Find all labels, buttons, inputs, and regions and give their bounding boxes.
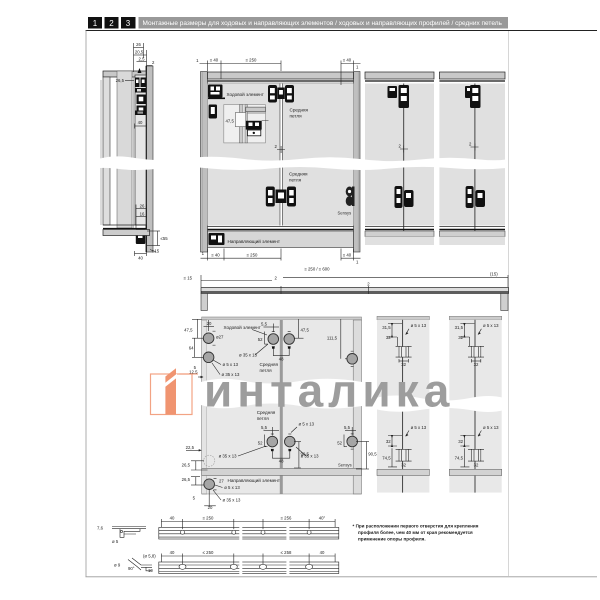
svg-text:16: 16: [140, 212, 145, 217]
svg-text:10: 10: [148, 568, 153, 573]
svg-text:5,5: 5,5: [261, 425, 268, 430]
svg-text:3: 3: [126, 19, 131, 28]
svg-text:≤ 250: ≤ 250: [203, 550, 214, 555]
svg-text:(15): (15): [490, 272, 498, 277]
svg-text:2,5: 2,5: [139, 57, 146, 62]
svg-text:20,5: 20,5: [135, 50, 144, 55]
svg-text:≤ 40: ≤ 40: [210, 58, 219, 63]
svg-text:20: 20: [207, 321, 212, 326]
svg-text:90,5: 90,5: [368, 452, 377, 457]
svg-text:петля: петля: [257, 416, 270, 421]
svg-text:профиля более, чем 40 мм от кр: профиля более, чем 40 мм от края рекомен…: [358, 529, 473, 535]
svg-text:применение опоры профиля.: применение опоры профиля.: [358, 536, 426, 542]
svg-text:(ø 5,8): (ø 5,8): [143, 554, 156, 559]
svg-text:40: 40: [170, 516, 175, 521]
svg-text:петля: петля: [289, 178, 302, 183]
svg-text:48: 48: [279, 459, 284, 464]
svg-text:инталика: инталика: [204, 365, 454, 417]
svg-text:40: 40: [320, 550, 325, 555]
svg-text:Sensys: Sensys: [338, 463, 352, 468]
svg-text:ø 5: ø 5: [112, 539, 119, 544]
svg-text:Средняя: Средняя: [289, 172, 308, 177]
svg-text:≤ 256: ≤ 256: [281, 516, 292, 521]
svg-text:7,6: 7,6: [97, 526, 104, 531]
svg-text:≤ 250: ≤ 250: [247, 252, 258, 257]
svg-text:≥15: ≥15: [152, 249, 160, 254]
svg-text:Sensys: Sensys: [338, 211, 352, 216]
svg-text:≤55: ≤55: [161, 236, 169, 241]
svg-text:2: 2: [109, 19, 114, 28]
svg-text:≤ 40: ≤ 40: [343, 58, 352, 63]
svg-text:90°: 90°: [128, 566, 135, 571]
svg-text:* При расположении первого отв: * При расположении первого отверстия для…: [353, 524, 479, 529]
svg-text:1: 1: [93, 19, 98, 28]
svg-text:40: 40: [170, 550, 175, 555]
svg-text:40°: 40°: [319, 516, 326, 521]
svg-text:Средняя: Средняя: [290, 108, 309, 113]
svg-text:ø 35 x 13: ø 35 x 13: [301, 454, 320, 459]
svg-text:5,5: 5,5: [261, 322, 268, 327]
svg-text:40: 40: [138, 256, 143, 261]
svg-text:ø 35 x 13: ø 35 x 13: [219, 454, 238, 459]
svg-text:48: 48: [279, 356, 284, 361]
svg-text:Монтажные размеры для ходовых: Монтажные размеры для ходовых и направля…: [143, 19, 503, 27]
svg-text:47,5: 47,5: [184, 328, 193, 333]
svg-text:26,5: 26,5: [116, 78, 125, 83]
svg-text:≤ 40: ≤ 40: [211, 252, 220, 257]
svg-text:Направляющий элемент: Направляющий элемент: [228, 238, 281, 244]
svg-text:≤ 250: ≤ 250: [203, 516, 214, 521]
svg-text:40: 40: [138, 120, 143, 125]
svg-text:петля: петля: [290, 114, 303, 119]
svg-text:ø 35 x 13: ø 35 x 13: [223, 498, 242, 503]
svg-text:111,5: 111,5: [327, 336, 338, 341]
svg-text:52: 52: [258, 440, 263, 445]
svg-text:Ходовой элемент: Ходовой элемент: [227, 91, 265, 97]
svg-text:Направляющий элемент: Направляющий элемент: [228, 477, 281, 483]
svg-text:52: 52: [258, 337, 263, 342]
svg-text:27: 27: [219, 479, 224, 484]
svg-text:47,5: 47,5: [226, 119, 235, 124]
svg-text:47,5: 47,5: [301, 328, 310, 333]
svg-text:64: 64: [189, 346, 194, 351]
svg-text:Ходовой элемент: Ходовой элемент: [224, 324, 262, 330]
svg-text:52: 52: [337, 440, 342, 445]
svg-text:ø 9: ø 9: [114, 563, 121, 568]
svg-text:ø 5 x 13: ø 5 x 13: [224, 485, 240, 490]
svg-text:≥ 250 / ≤ 600: ≥ 250 / ≤ 600: [304, 267, 330, 272]
svg-text:26,5: 26,5: [182, 477, 191, 482]
svg-text:≤ 15: ≤ 15: [184, 276, 193, 281]
svg-text:26,5: 26,5: [182, 463, 191, 468]
svg-text:26: 26: [136, 42, 141, 47]
svg-text:≤ 258: ≤ 258: [281, 550, 292, 555]
svg-text:22,5: 22,5: [186, 445, 195, 450]
svg-text:ø27: ø27: [216, 335, 224, 340]
svg-text:ø 5 x 13: ø 5 x 13: [299, 422, 315, 427]
svg-text:5,5: 5,5: [344, 425, 351, 430]
svg-text:ø 35 x 13: ø 35 x 13: [239, 353, 258, 358]
svg-text:26: 26: [140, 204, 145, 209]
svg-text:≤ 40: ≤ 40: [343, 252, 352, 257]
svg-text:≤ 250: ≤ 250: [246, 58, 257, 63]
